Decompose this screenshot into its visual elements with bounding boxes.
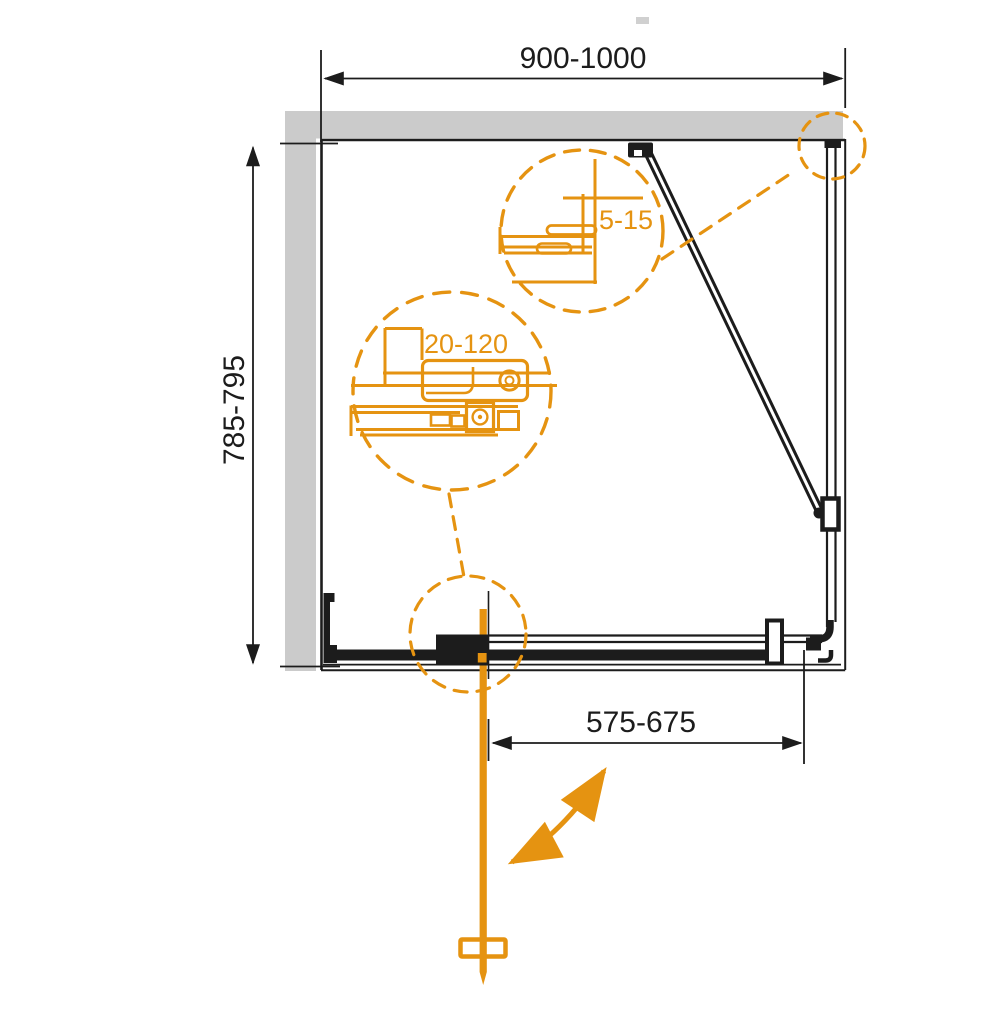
panel-top-cap [825, 140, 842, 149]
door-tip [480, 972, 487, 985]
bottom-track-assembly [323, 591, 841, 985]
glass-adjustment-label: 5-15 [599, 205, 653, 235]
edge-artifact [636, 17, 649, 24]
detail-circle [353, 292, 551, 490]
door-rail [331, 650, 779, 661]
shower-enclosure-technical-drawing: 5-15 20-120 [40, 16, 1000, 1016]
detail-circle [410, 576, 526, 692]
leader-line-bottom [449, 494, 464, 577]
dimension-door-width: 575-675 [489, 650, 805, 764]
fixed-glass-panel [825, 140, 842, 628]
walls [285, 17, 843, 671]
door-swing-arrow [512, 771, 604, 862]
dimension-label: 900-1000 [520, 42, 647, 75]
wall-top [285, 111, 843, 139]
pivot-block [436, 635, 488, 652]
door-through-rail [478, 653, 487, 663]
wall-bracket-slot [634, 150, 642, 156]
detail-view-wall-profile: 20-120 [351, 292, 557, 490]
corner-elbow [810, 620, 830, 639]
corner-elbow-small [818, 650, 831, 661]
dimension-label: 575-675 [586, 706, 696, 739]
dimension-label: 785-795 [218, 355, 251, 465]
glass-bracket [823, 499, 839, 530]
wall-side [285, 111, 316, 671]
detail-view-pivot [410, 576, 526, 692]
support-bar [628, 143, 839, 530]
support-bar-core [649, 155, 820, 512]
detail-view-glass-adjustment: 5-15 [499, 150, 663, 312]
drawing-canvas: 5-15 20-120 [40, 16, 1000, 1016]
clamp-bracket [767, 621, 782, 664]
wall-profile-label: 20-120 [424, 329, 508, 359]
